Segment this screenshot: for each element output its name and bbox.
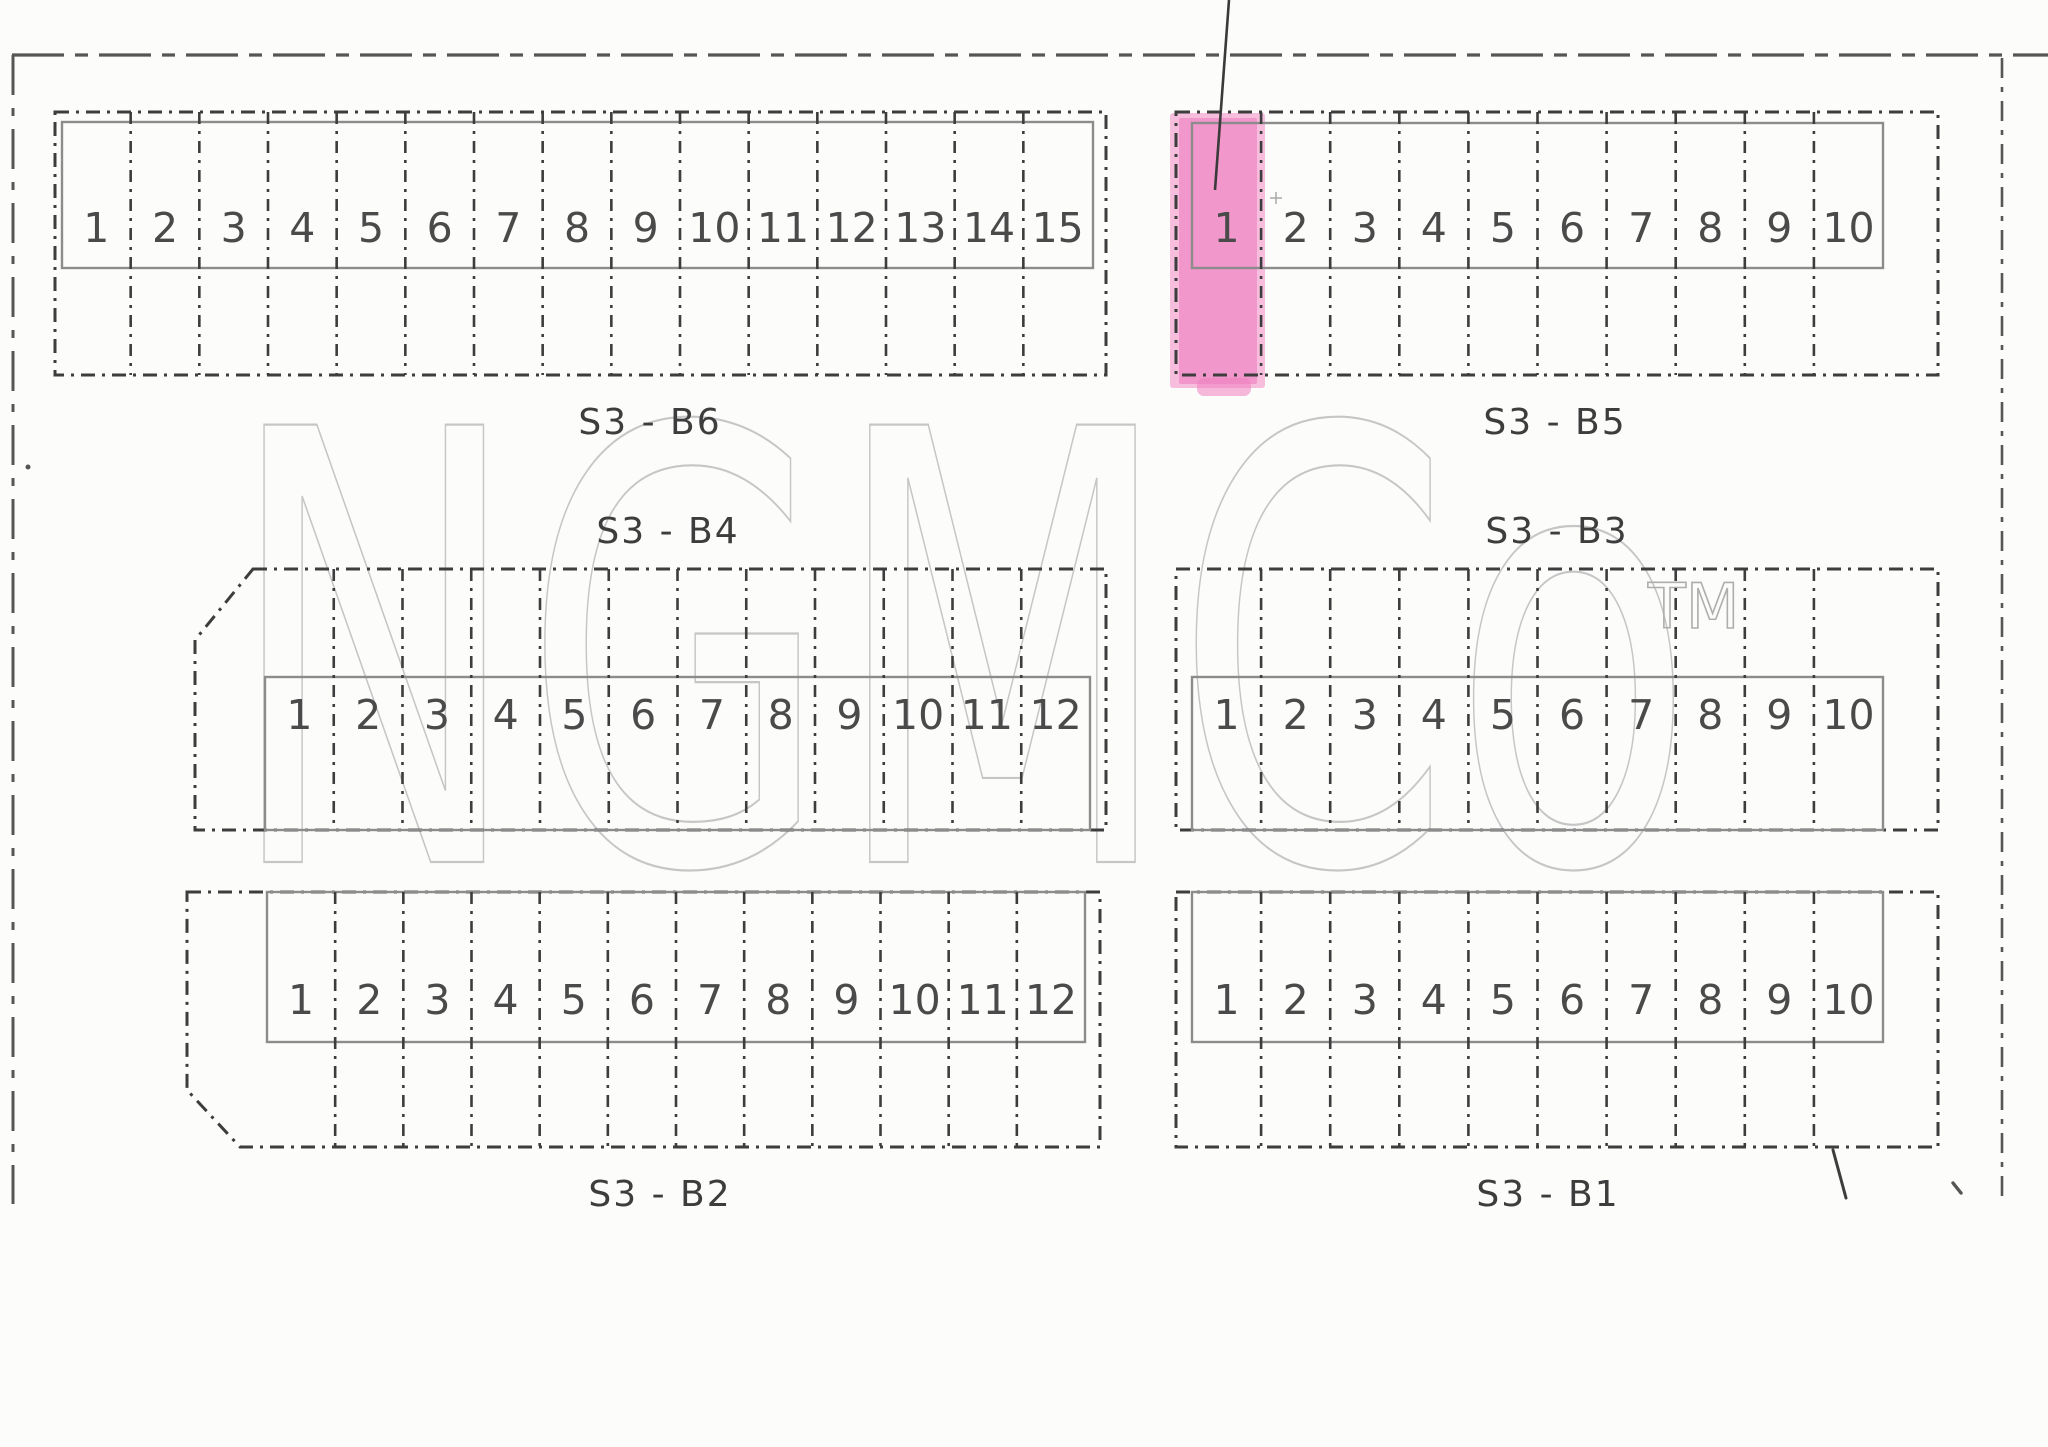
lot-number: 7: [697, 976, 723, 1024]
lot-number: 1: [1214, 204, 1240, 252]
small-plus-mark: [1270, 192, 1282, 204]
lot-number: 1: [83, 204, 109, 252]
lot-number: 1: [286, 691, 312, 739]
lot-number: 4: [493, 976, 519, 1024]
lot-number: 3: [1352, 691, 1378, 739]
lot-number: 2: [1283, 691, 1309, 739]
lot-number: 11: [961, 691, 1013, 739]
lot-number: 8: [765, 976, 791, 1024]
lot-number: 1: [288, 976, 314, 1024]
block-label: S3 - B3: [1485, 511, 1628, 552]
plat-sheet: NGMCoTM123456789101112131415S3 - B612345…: [0, 0, 2048, 1447]
lot-number: 8: [1697, 691, 1723, 739]
lot-number: 2: [152, 204, 178, 252]
lot-number: 8: [1697, 976, 1723, 1024]
lot-number: 15: [1032, 204, 1084, 252]
lot-number: 10: [1822, 691, 1874, 739]
lot-number: 3: [424, 691, 450, 739]
lot-number: 4: [493, 691, 519, 739]
lot-number: 9: [1766, 976, 1792, 1024]
lot-number: 5: [1490, 204, 1516, 252]
lot-number: 5: [358, 204, 384, 252]
lot-number: 9: [633, 204, 659, 252]
diagonal-tick-mark: [1833, 1150, 1846, 1198]
lot-number: 4: [1421, 976, 1447, 1024]
lot-number: 4: [289, 204, 315, 252]
lot-number: 10: [1822, 976, 1874, 1024]
lot-number: 2: [356, 976, 382, 1024]
lot-number: 10: [892, 691, 944, 739]
lot-number: 13: [894, 204, 946, 252]
lot-number: 3: [221, 204, 247, 252]
lot-number: 9: [1766, 204, 1792, 252]
lot-number: 5: [1490, 976, 1516, 1024]
lot-number: 9: [1766, 691, 1792, 739]
lot-number: 5: [561, 976, 587, 1024]
block-label: S3 - B5: [1483, 402, 1626, 443]
block-label: S3 - B4: [596, 511, 739, 552]
lot-number: 8: [564, 204, 590, 252]
lot-number: 12: [1025, 976, 1077, 1024]
lot-number: 11: [957, 976, 1009, 1024]
lot-number: 7: [495, 204, 521, 252]
lot-number: 1: [1214, 691, 1240, 739]
block-label: S3 - B6: [578, 402, 721, 443]
lot-number: 7: [1628, 691, 1654, 739]
lot-number: 6: [427, 204, 453, 252]
lot-number: 6: [1559, 204, 1585, 252]
period-mark: [26, 465, 31, 470]
lot-number: 9: [833, 976, 859, 1024]
lot-number: 5: [561, 691, 587, 739]
lot-number: 11: [757, 204, 809, 252]
lot-number: 3: [424, 976, 450, 1024]
plat-drawing: NGMCoTM123456789101112131415S3 - B612345…: [0, 0, 2048, 1447]
lot-number: 6: [1559, 976, 1585, 1024]
comma-mark: [1953, 1183, 1961, 1193]
lot-number: 8: [1697, 204, 1723, 252]
watermark-tm-mark: TM: [1647, 570, 1739, 643]
lot-number: 6: [1559, 691, 1585, 739]
lot-number: 4: [1421, 691, 1447, 739]
lot-number: 7: [1628, 976, 1654, 1024]
lot-number: 2: [1283, 976, 1309, 1024]
lot-number: 8: [768, 691, 794, 739]
lot-number: 6: [630, 691, 656, 739]
lot-number: 2: [355, 691, 381, 739]
lot-number: 12: [826, 204, 878, 252]
lot-number: 10: [688, 204, 740, 252]
lot-number: 5: [1490, 691, 1516, 739]
block-label: S3 - B2: [588, 1174, 731, 1215]
lot-number: 2: [1283, 204, 1309, 252]
lot-number: 7: [699, 691, 725, 739]
lot-number: 9: [836, 691, 862, 739]
lot-number: 10: [1822, 204, 1874, 252]
lot-number: 1: [1214, 976, 1240, 1024]
lot-number: 14: [963, 204, 1015, 252]
lot-number: 3: [1352, 976, 1378, 1024]
lot-number: 10: [888, 976, 940, 1024]
lot-number: 6: [629, 976, 655, 1024]
lot-number: 3: [1352, 204, 1378, 252]
watermark-text: NGMCo: [225, 305, 1695, 1004]
lot-number: 7: [1628, 204, 1654, 252]
lot-number: 4: [1421, 204, 1447, 252]
lot-number: 12: [1030, 691, 1082, 739]
block-label: S3 - B1: [1476, 1174, 1619, 1215]
